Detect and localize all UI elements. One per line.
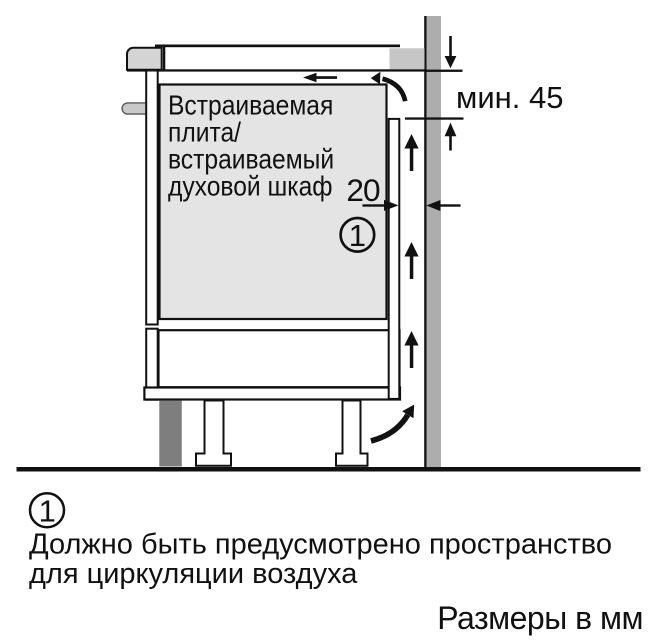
svg-text:для циркуляции воздуха: для циркуляции воздуха	[29, 558, 358, 590]
svg-text:Размеры в мм: Размеры в мм	[437, 600, 643, 636]
svg-text:духовой шкаф: духовой шкаф	[168, 170, 333, 202]
svg-text:Должно быть предусмотрено прос: Должно быть предусмотрено пространство	[29, 528, 612, 560]
svg-text:1: 1	[349, 218, 366, 253]
svg-text:20: 20	[346, 172, 380, 208]
svg-text:мин. 45: мин. 45	[456, 80, 563, 115]
svg-text:1: 1	[39, 494, 56, 529]
